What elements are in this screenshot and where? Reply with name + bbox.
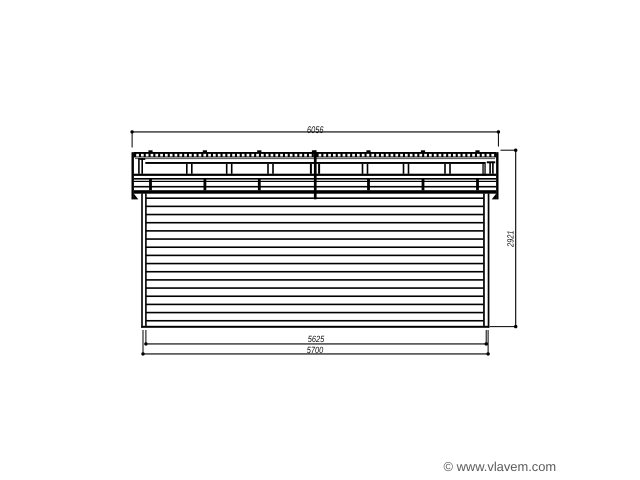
svg-text:2921: 2921 [506, 230, 516, 247]
svg-text:5700: 5700 [307, 345, 324, 355]
svg-text:6056: 6056 [307, 125, 324, 136]
svg-text:5625: 5625 [308, 334, 325, 344]
svg-text:© www.vlavem.com: © www.vlavem.com [444, 459, 557, 474]
